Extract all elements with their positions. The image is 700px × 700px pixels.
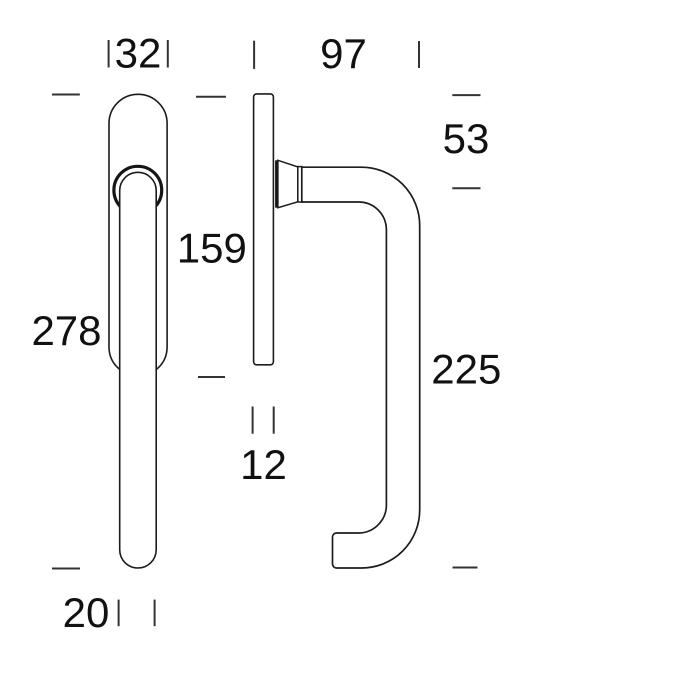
svg-text:97: 97 xyxy=(320,30,367,77)
svg-text:32: 32 xyxy=(115,30,162,77)
svg-text:278: 278 xyxy=(31,307,101,354)
svg-text:20: 20 xyxy=(63,589,110,636)
svg-text:225: 225 xyxy=(431,345,501,392)
svg-text:53: 53 xyxy=(443,115,490,162)
svg-text:12: 12 xyxy=(240,441,287,488)
svg-text:159: 159 xyxy=(177,224,247,271)
